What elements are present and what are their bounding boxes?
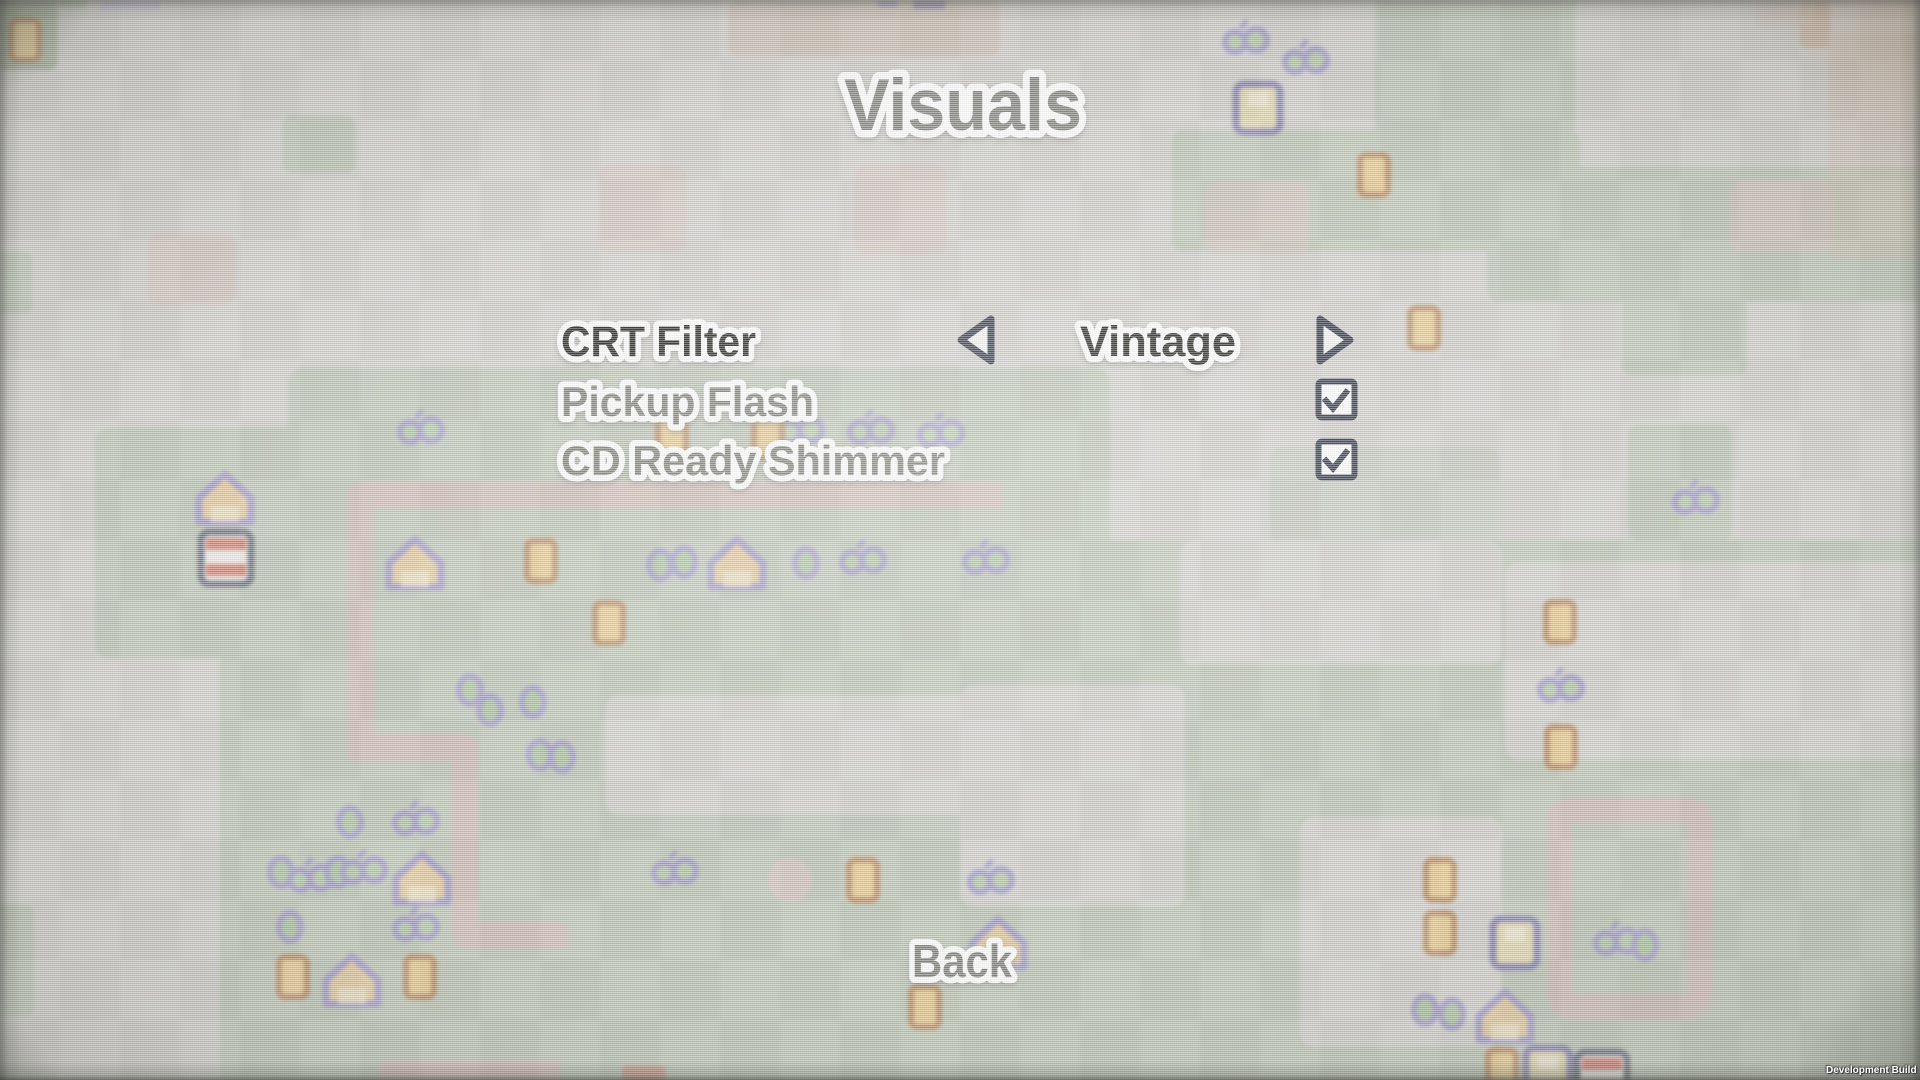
svg-text:CD Ready Shimmer: CD Ready Shimmer [561, 437, 945, 484]
svg-text:CRT Filter: CRT Filter [561, 318, 756, 366]
svg-text:Pickup Flash: Pickup Flash [561, 378, 814, 425]
svg-text:Back: Back [912, 935, 1012, 987]
svg-text:Visuals: Visuals [844, 65, 1082, 146]
svg-text:Vintage: Vintage [1080, 318, 1236, 366]
